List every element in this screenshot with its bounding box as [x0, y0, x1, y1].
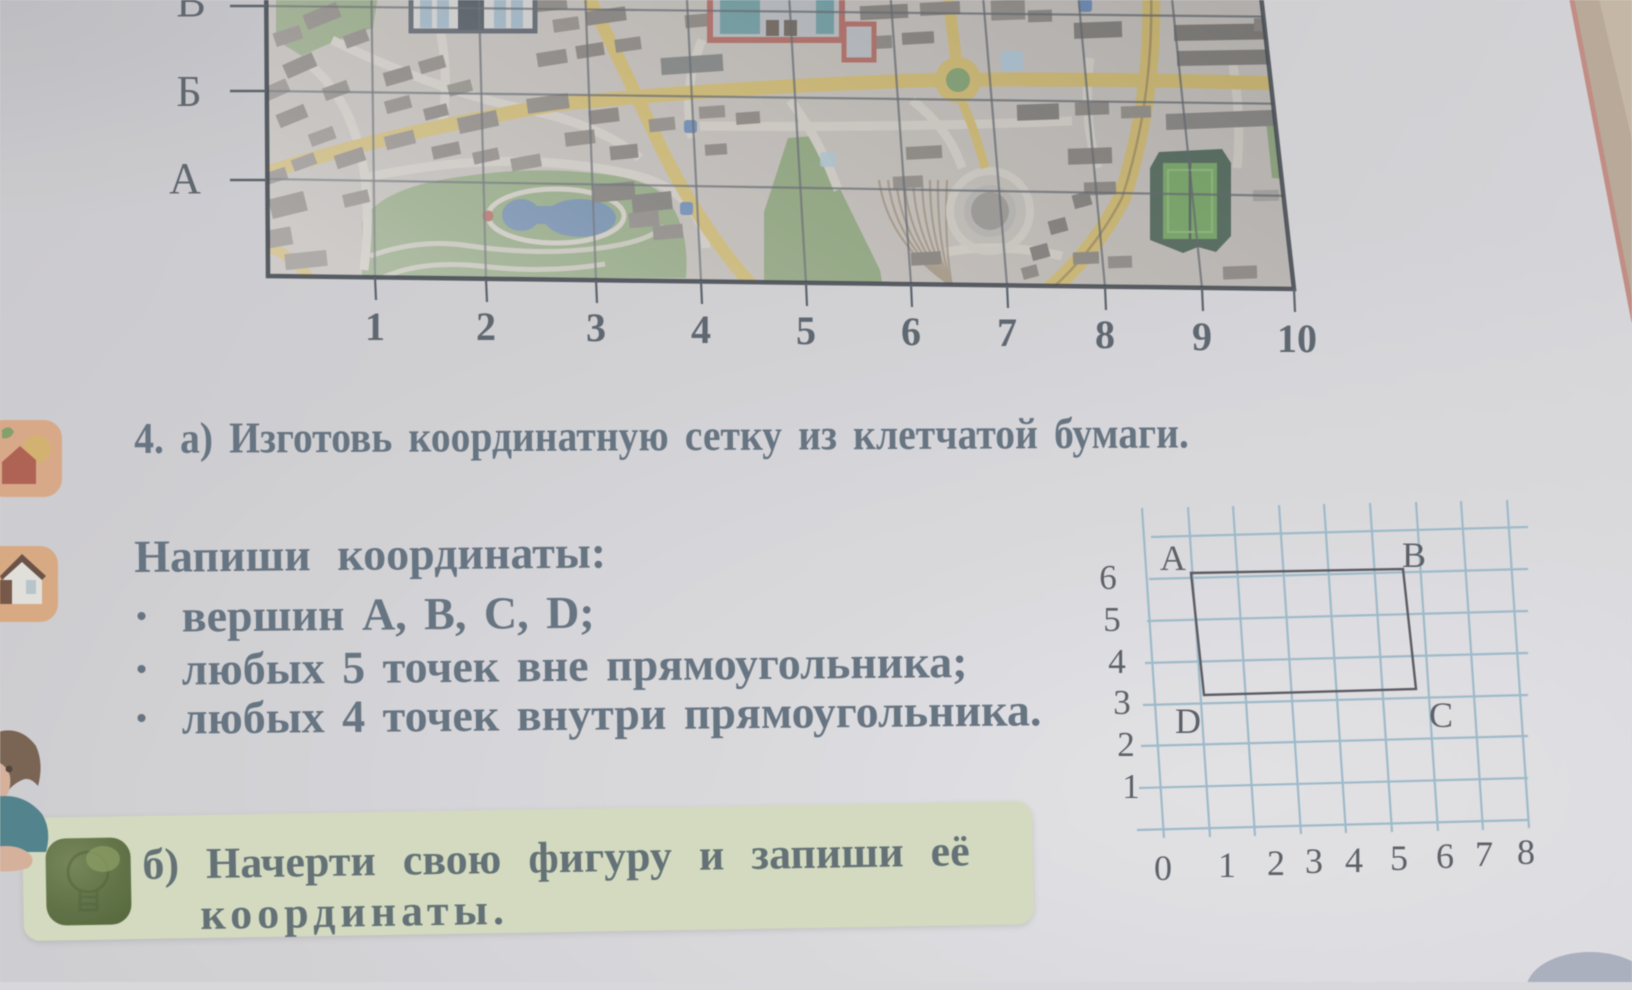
svg-text:7: 7 [1475, 834, 1493, 874]
svg-text:5: 5 [796, 308, 816, 353]
svg-text:1: 1 [1218, 845, 1236, 885]
svg-text:A: A [1160, 538, 1186, 578]
svg-text:0: 0 [1154, 848, 1172, 888]
svg-text:6: 6 [901, 309, 921, 354]
svg-text:C: C [1429, 695, 1453, 735]
svg-text:1: 1 [1122, 767, 1140, 806]
svg-text:6: 6 [1436, 836, 1454, 876]
svg-text:5: 5 [1390, 838, 1408, 878]
svg-text:8: 8 [1517, 832, 1535, 872]
svg-text:9: 9 [1192, 314, 1212, 359]
svg-text:10: 10 [1277, 316, 1317, 361]
svg-text:7: 7 [997, 310, 1017, 355]
svg-text:2: 2 [1267, 843, 1285, 883]
svg-text:6: 6 [1099, 558, 1117, 597]
svg-text:2: 2 [476, 304, 496, 349]
svg-text:3: 3 [586, 305, 606, 350]
svg-text:1: 1 [365, 304, 385, 349]
svg-text:D: D [1175, 701, 1201, 741]
svg-text:Б: Б [176, 67, 201, 116]
svg-text:2: 2 [1117, 725, 1135, 764]
svg-text:B: B [1402, 535, 1426, 575]
svg-text:4: 4 [691, 307, 711, 352]
svg-text:5: 5 [1103, 600, 1121, 639]
svg-text:3: 3 [1113, 683, 1131, 722]
svg-text:4: 4 [1108, 642, 1126, 681]
svg-text:3: 3 [1305, 841, 1323, 881]
svg-text:В: В [176, 0, 205, 26]
svg-text:8: 8 [1095, 312, 1115, 357]
svg-text:А: А [169, 154, 201, 203]
svg-text:4: 4 [1345, 840, 1363, 880]
